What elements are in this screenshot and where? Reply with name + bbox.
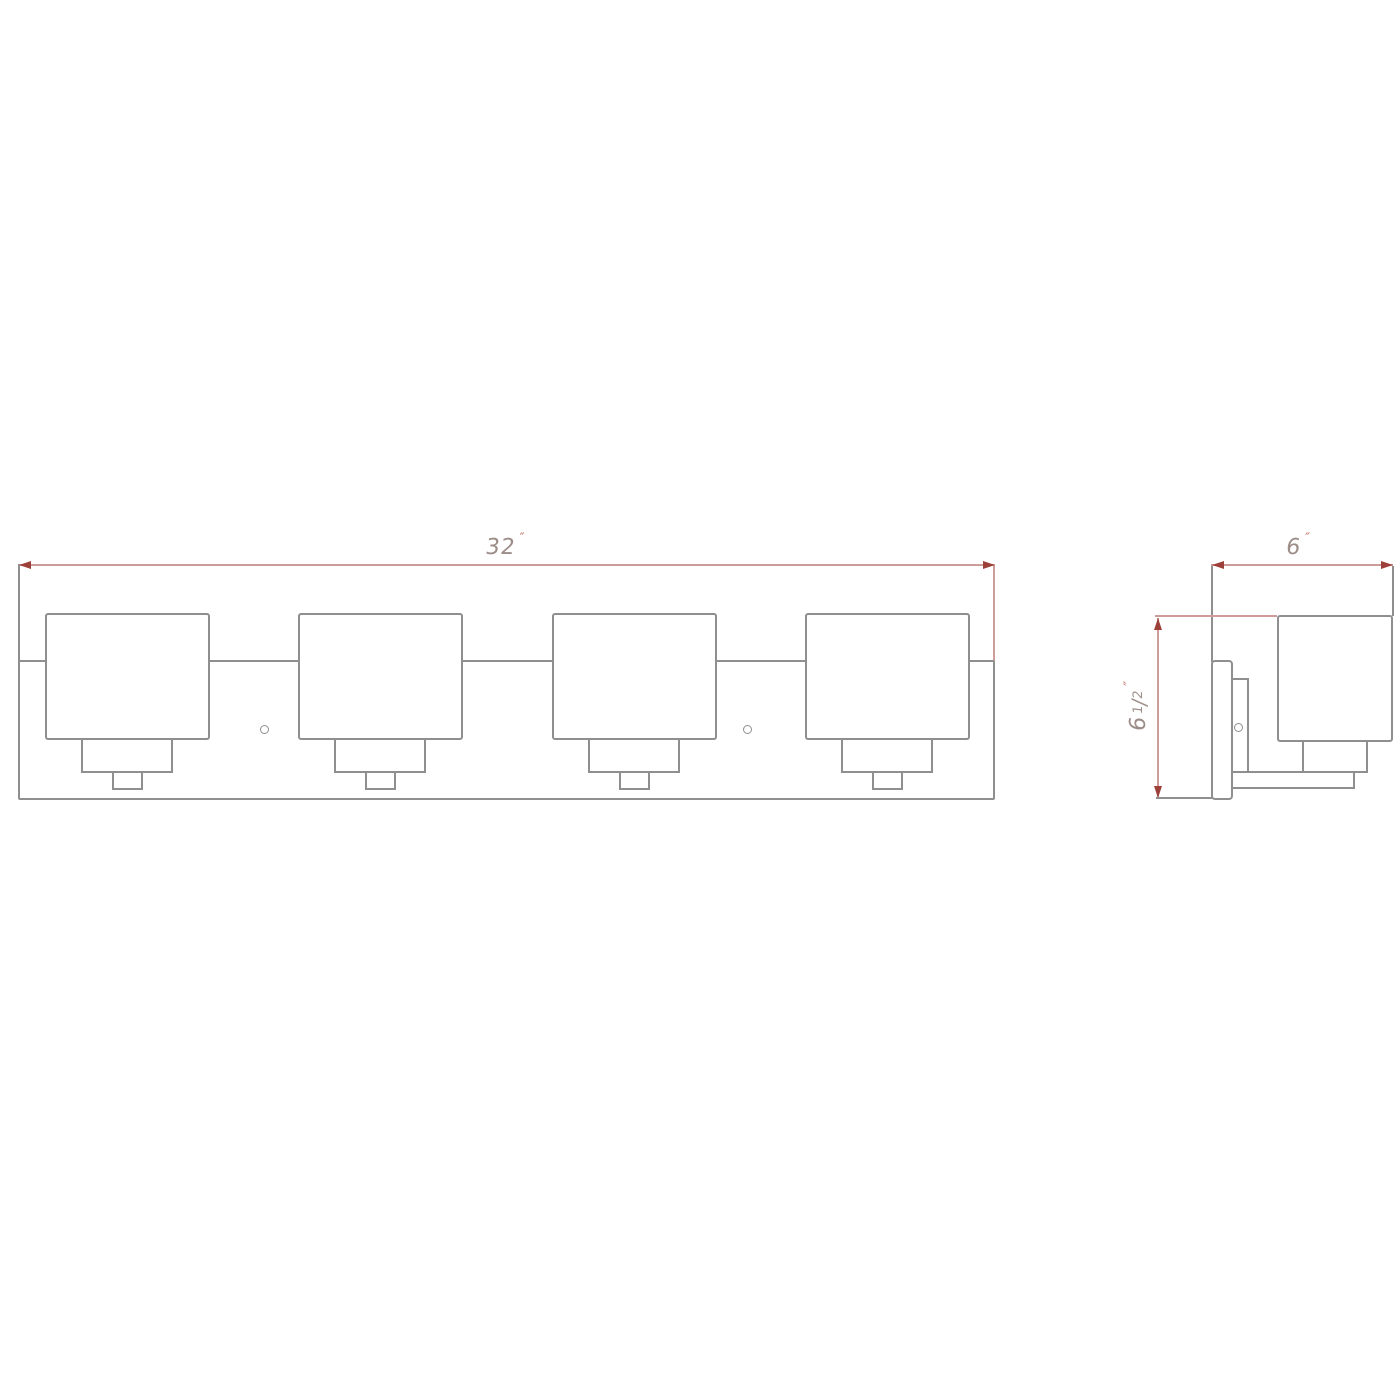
depth-dimension-arrow-left: [1212, 561, 1224, 569]
height-extension-line-bottom: [1156, 797, 1212, 799]
shade-holder-side: [1302, 740, 1368, 773]
height-dimension-line: [1157, 618, 1159, 798]
height-extension-line-top: [1155, 615, 1277, 617]
support-arm-bottom-line: [1233, 787, 1355, 789]
depth-extension-line-right: [1392, 566, 1394, 616]
height-dimension-unit-mark: ″: [1118, 679, 1142, 688]
depth-extension-line-left: [1211, 566, 1213, 662]
depth-dimension-line: [1211, 564, 1393, 566]
shade-box-side: [1277, 615, 1393, 742]
wall-plate-side: [1211, 660, 1233, 800]
depth-dimension-label: 6″: [1251, 530, 1345, 560]
depth-dimension-unit-mark: ″: [1303, 527, 1312, 551]
height-dimension-whole: 6: [1127, 714, 1151, 732]
bracket-screw-hole-side: [1234, 723, 1243, 732]
depth-dimension-value: 6: [1284, 536, 1302, 560]
side-view: 6″ 61/2″: [0, 0, 1400, 1400]
height-dimension-arrow-top: [1154, 618, 1162, 630]
vanity-light-dimension-drawing: 32″: [0, 0, 1400, 1400]
height-dimension-label: 61/2″: [1121, 668, 1151, 744]
